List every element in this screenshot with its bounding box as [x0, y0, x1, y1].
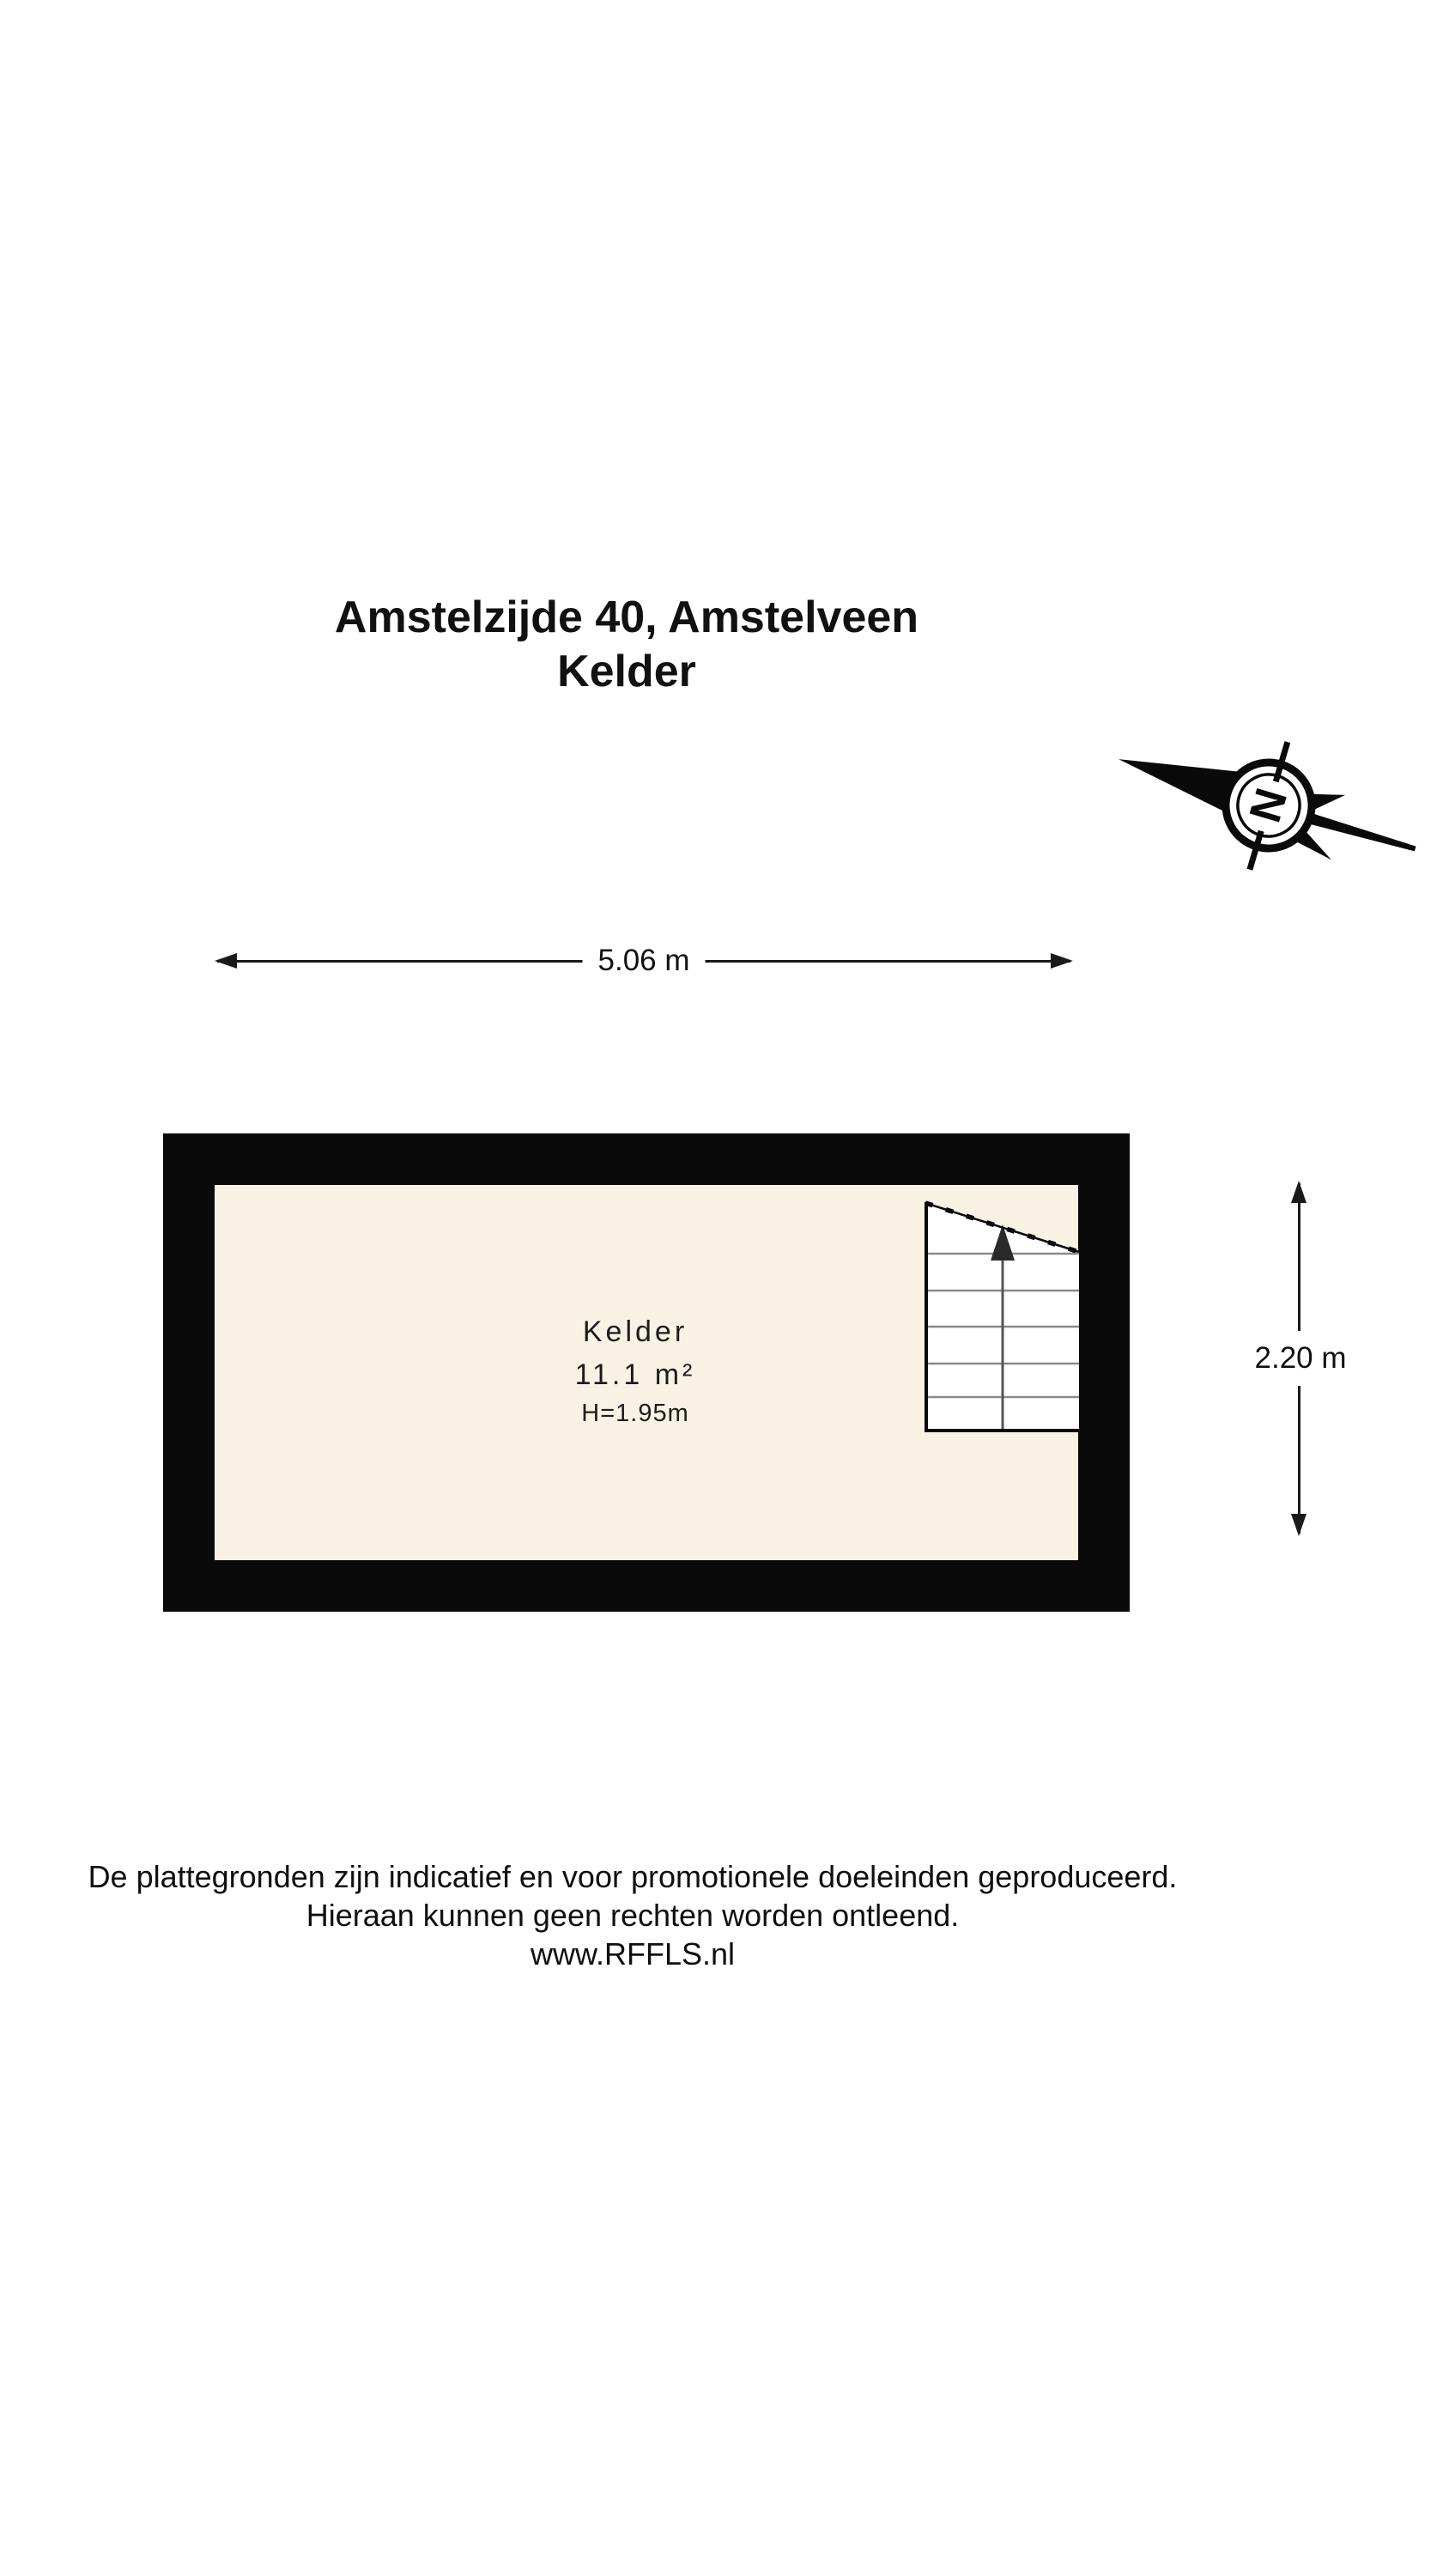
room-area: 11.1 m²	[575, 1358, 696, 1392]
disclaimer-line-1: De plattegronden zijn indicatief en voor…	[0, 1857, 1265, 1896]
dimension-width-label: 5.06 m	[583, 944, 706, 978]
room-name: Kelder	[575, 1315, 696, 1349]
dimension-width: 5.06 m	[215, 943, 1073, 981]
arrowhead-right-icon	[1051, 953, 1073, 969]
arrowhead-down-icon	[1291, 1514, 1307, 1536]
dimension-height-label: 2.20 m	[1252, 1331, 1350, 1386]
compass-north-icon: N	[1106, 726, 1432, 890]
floorplan: Kelder 11.1 m² H=1.95m	[163, 1133, 1130, 1612]
floorplan-page: Amstelzijde 40, Amstelveen Kelder N 5.06…	[0, 0, 1449, 2576]
room-ceiling-height: H=1.95m	[575, 1400, 696, 1428]
page-title-block: Amstelzijde 40, Amstelveen Kelder	[0, 591, 1253, 699]
disclaimer-line-2: Hieraan kunnen geen rechten worden ontle…	[0, 1896, 1265, 1935]
disclaimer-website: www.RFFLS.nl	[0, 1935, 1265, 1973]
page-title: Amstelzijde 40, Amstelveen	[0, 591, 1253, 645]
arrowhead-left-icon	[215, 953, 237, 969]
disclaimer: De plattegronden zijn indicatief en voor…	[0, 1857, 1265, 1973]
page-subtitle: Kelder	[0, 645, 1253, 699]
arrowhead-up-icon	[1291, 1181, 1307, 1203]
dimension-height: 2.20 m	[1270, 1181, 1338, 1536]
room-label: Kelder 11.1 m² H=1.95m	[575, 1315, 696, 1428]
